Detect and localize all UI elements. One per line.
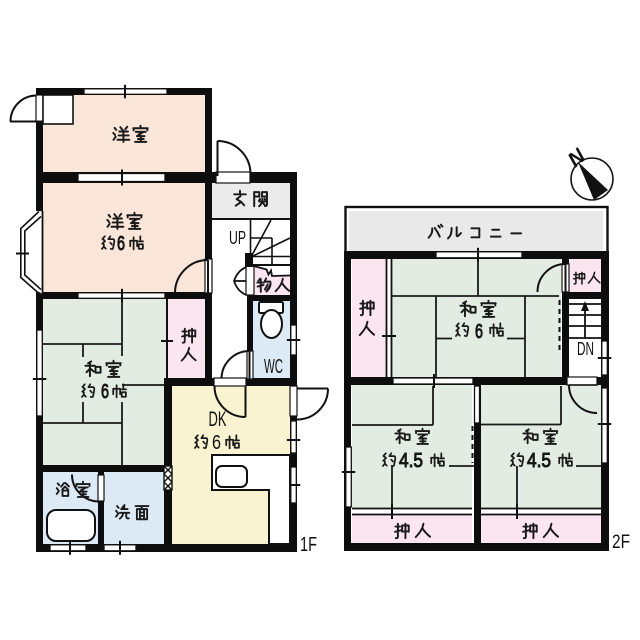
svg-text:1F: 1F [300, 533, 317, 556]
svg-text:4.5: 4.5 [527, 450, 551, 472]
svg-text:2F: 2F [612, 531, 630, 553]
svg-text:4.5: 4.5 [399, 450, 423, 472]
svg-text:6: 6 [101, 381, 109, 403]
svg-text:DK: DK [209, 408, 227, 431]
svg-text:WC: WC [264, 356, 283, 378]
svg-text:6: 6 [212, 432, 221, 454]
svg-text:6: 6 [117, 233, 125, 255]
svg-text:6: 6 [475, 321, 483, 343]
svg-text:UP: UP [229, 228, 246, 248]
svg-text:DN: DN [577, 339, 594, 359]
